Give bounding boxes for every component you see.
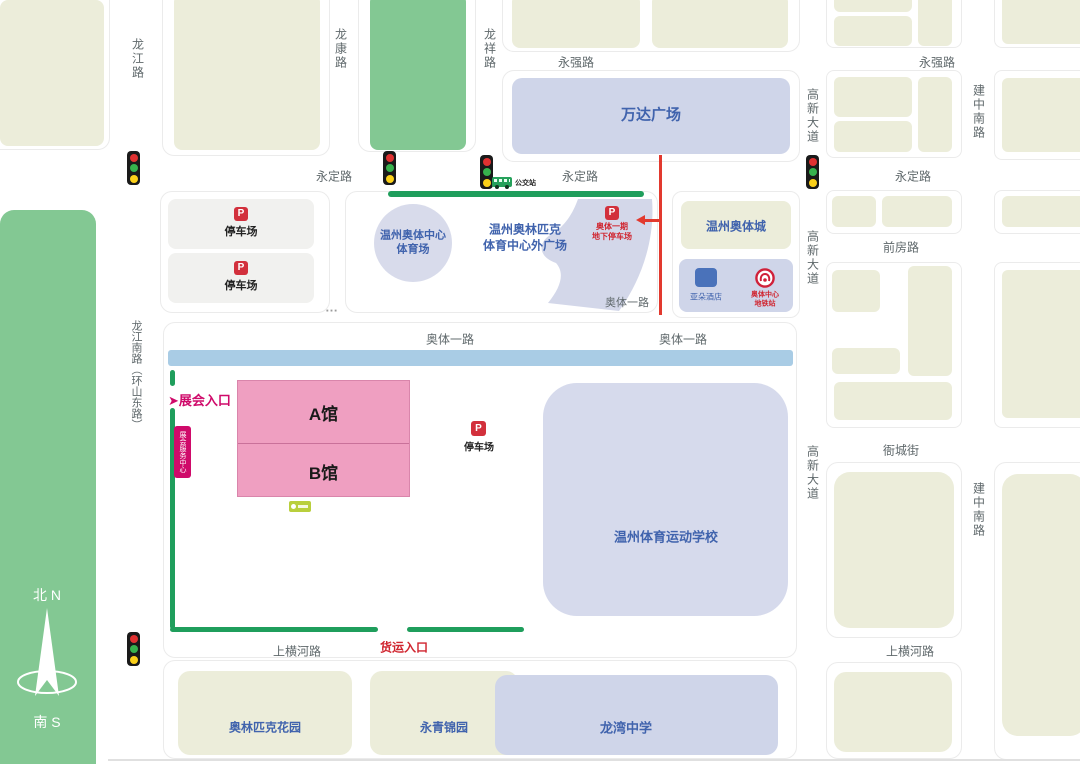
stadium-label-line1: 温州奥体中心	[380, 229, 446, 243]
green-route-line	[170, 627, 378, 632]
road-label-shanghenghe-w: 上横河路	[273, 643, 321, 660]
road-label-aoti-1st-e: 奥体一路	[659, 331, 707, 348]
city-block-fill	[882, 196, 952, 227]
city-block-fill	[1002, 78, 1080, 152]
green-route-line	[170, 370, 175, 386]
parking-icon-letter: P	[609, 208, 616, 218]
city-block-fill	[832, 270, 880, 312]
underground-parking-line1: 奥体一期	[592, 222, 632, 232]
plaza-label-line1: 温州奥林匹克	[483, 222, 567, 238]
city-block-fill	[174, 0, 320, 150]
sports-school-block	[543, 383, 788, 616]
road-label-shanghenghe-e: 上横河路	[886, 643, 934, 660]
road-label-aoti-1st: 奥体一路	[605, 294, 649, 310]
road-label-longkang: 龙康路	[333, 28, 350, 70]
aoti-city-label: 温州奥体城	[706, 218, 766, 235]
exhibition-halls: A馆 B馆	[237, 380, 410, 497]
red-route-line	[659, 155, 662, 315]
compass-south-label: 南 S	[33, 712, 60, 732]
road-label-jianzhong-1: 建中南路	[971, 84, 988, 140]
metro-label-line1: 奥体中心	[751, 291, 779, 300]
road-label-longjiang-south: 龙江南路（环山东路）	[128, 320, 144, 430]
road-label-gaoxin-2: 高新大道	[805, 230, 822, 286]
bus-stop-label: 公交站	[515, 178, 536, 188]
olympic-garden-label: 奥林匹克花园	[229, 719, 301, 736]
hotel-label: 亚朵酒店	[690, 292, 722, 303]
yongqing-label: 永青锦园	[420, 719, 468, 736]
city-block-fill	[1002, 0, 1080, 44]
parking-icon: P	[234, 261, 248, 275]
red-route-branch	[645, 219, 661, 222]
venue-map: 万达广场 P 停车场 P 停车场 … 温州奥体中心 体育场 温州奥林匹克 体育中…	[0, 0, 1080, 764]
expo-entrance: ➤展会入口	[168, 390, 231, 409]
ellipsis: …	[325, 300, 339, 315]
city-block-fill	[834, 77, 912, 117]
city-block-fill	[512, 0, 640, 48]
park-block-fill	[370, 0, 466, 150]
city-block-fill	[918, 0, 952, 46]
city-block-fill	[834, 672, 952, 752]
city-block-fill	[1002, 270, 1080, 418]
longwan-school-fill	[495, 675, 778, 755]
mini-green-badge	[289, 501, 311, 512]
road-label-aoti-1st-w: 奥体一路	[426, 331, 474, 348]
mini-green-badge-text	[298, 505, 308, 508]
map-bottom-edge	[108, 759, 1080, 761]
city-block-fill	[832, 196, 876, 227]
green-route-line	[407, 627, 524, 632]
city-block-fill	[0, 0, 104, 146]
compass-north-label: 北 N	[33, 585, 61, 605]
underground-parking-line2: 地下停车场	[592, 232, 632, 242]
bus-stop-icon	[492, 177, 512, 187]
traffic-light-icon	[806, 155, 819, 189]
road-label-qianfang: 前房路	[883, 239, 919, 256]
plaza-label: 温州奥林匹克 体育中心外广场	[483, 222, 567, 253]
service-center-badge: 展会服务中心	[174, 426, 191, 478]
hall-a: A馆	[238, 381, 409, 444]
parking-icon: P	[234, 207, 248, 221]
traffic-light-icon	[127, 151, 140, 185]
parking-icon: P	[471, 421, 486, 436]
longwan-school-label: 龙湾中学	[600, 718, 652, 737]
red-route-arrow	[636, 215, 645, 225]
metro-icon	[754, 267, 776, 289]
road-label-yongding-w: 永定路	[316, 168, 352, 185]
mini-green-badge-icon	[291, 504, 296, 509]
parking-label: 停车场	[464, 439, 494, 454]
metro-label: 奥体中心 地铁站	[751, 291, 779, 309]
road-label-yongding-c: 永定路	[562, 168, 598, 185]
hotel-icon	[695, 268, 717, 287]
city-block-fill	[832, 348, 900, 374]
city-block-fill	[908, 266, 952, 376]
parking-label: 停车场	[225, 277, 258, 293]
road-label-yongding-e: 永定路	[895, 168, 931, 185]
city-block-fill	[834, 121, 912, 152]
road-label-jianzhong-2: 建中南路	[971, 482, 988, 538]
aoti-road-band	[168, 350, 793, 366]
city-block-fill	[1002, 196, 1080, 227]
city-block-fill	[834, 0, 912, 12]
stadium-label: 温州奥体中心 体育场	[380, 229, 446, 258]
city-block-fill	[834, 16, 912, 46]
road-label-gaoxin-1: 高新大道	[805, 88, 822, 144]
road-label-gaoxin-3: 高新大道	[805, 445, 822, 501]
road-label-longjiang: 龙江路	[130, 38, 147, 80]
stadium-label-line2: 体育场	[380, 243, 446, 257]
traffic-light-icon	[383, 151, 396, 185]
expo-entrance-arrow-icon: ➤	[168, 393, 179, 408]
parking-label: 停车场	[225, 223, 258, 239]
parking-icon-letter: P	[238, 263, 245, 273]
underground-parking-icon: P	[605, 206, 619, 220]
underground-parking-label: 奥体一期 地下停车场	[592, 222, 632, 242]
city-block-fill	[1002, 474, 1080, 736]
freight-entrance-label: 货运入口	[380, 641, 428, 656]
road-label-longxiang: 龙祥路	[482, 28, 499, 70]
sports-school-label: 温州体育运动学校	[614, 527, 718, 546]
road-label-yongqiang-e: 永强路	[919, 54, 955, 71]
metro-label-line2: 地铁站	[751, 300, 779, 309]
city-block-fill	[834, 472, 954, 628]
city-block-fill	[918, 77, 952, 152]
city-block-fill	[652, 0, 788, 48]
traffic-light-icon	[127, 632, 140, 666]
parking-icon-letter: P	[238, 209, 245, 219]
hall-b: B馆	[238, 444, 409, 498]
city-block-fill	[834, 382, 952, 420]
road-label-yongqiang-w: 永强路	[558, 54, 594, 71]
parking-icon-letter: P	[475, 424, 482, 434]
wanda-plaza-label: 万达广场	[621, 104, 681, 125]
plaza-label-line2: 体育中心外广场	[483, 238, 567, 254]
road-label-yacheng: 衙城街	[883, 442, 919, 459]
expo-entrance-label: 展会入口	[179, 393, 231, 408]
olympic-garden-fill	[178, 671, 352, 755]
compass-icon	[14, 606, 80, 710]
